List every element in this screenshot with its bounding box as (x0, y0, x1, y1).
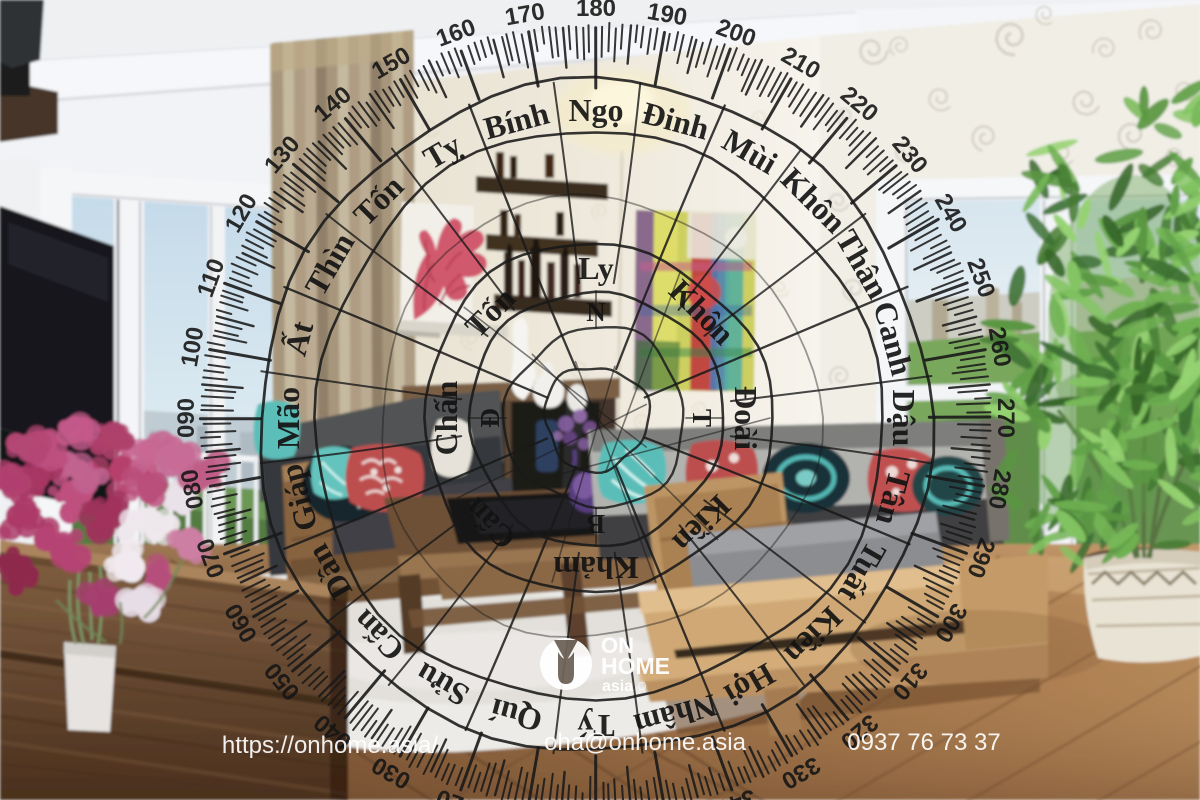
svg-text:Ly: Ly (578, 250, 614, 286)
svg-text:T: T (687, 409, 717, 427)
svg-text:N: N (586, 297, 606, 327)
svg-text:Đoài: Đoài (728, 386, 764, 450)
svg-text:270: 270 (992, 398, 1019, 438)
svg-text:0937 76 73 37: 0937 76 73 37 (847, 729, 1000, 756)
svg-text:Đ: Đ (475, 408, 505, 428)
svg-text:HOME: HOME (601, 653, 670, 679)
svg-text:090: 090 (173, 398, 200, 438)
svg-text:Chấn: Chấn (428, 380, 464, 455)
svg-text:Dậu: Dậu (886, 390, 922, 447)
svg-text:Khảm: Khảm (553, 550, 639, 586)
svg-text:https://onhome.asia/: https://onhome.asia/ (222, 732, 438, 759)
svg-text:Ngọ: Ngọ (568, 92, 623, 128)
svg-text:Mão: Mão (270, 387, 306, 449)
svg-text:B: B (587, 509, 605, 539)
svg-text:180: 180 (576, 0, 616, 22)
svg-text:oha@onhome.asia: oha@onhome.asia (544, 729, 746, 756)
svg-text:asia: asia (602, 678, 633, 695)
